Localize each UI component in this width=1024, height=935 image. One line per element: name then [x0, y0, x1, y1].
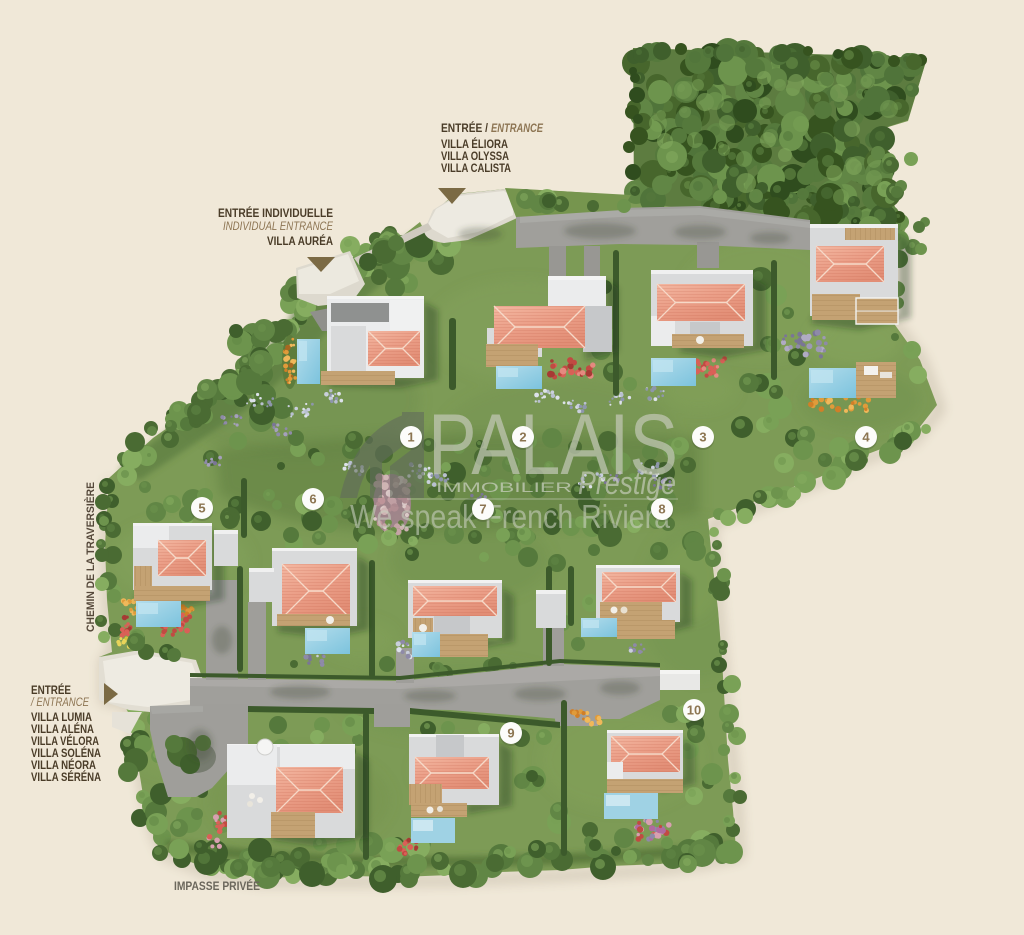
- svg-text:VILLA CALISTA: VILLA CALISTA: [441, 163, 511, 175]
- svg-text:ENTRÉE: ENTRÉE: [31, 682, 71, 697]
- svg-text:/ ENTRANCE: / ENTRANCE: [30, 697, 89, 709]
- svg-text:VILLA VÉLORA: VILLA VÉLORA: [31, 735, 99, 748]
- svg-text:8: 8: [658, 502, 665, 517]
- svg-text:2: 2: [519, 430, 526, 445]
- svg-text:Prestige: Prestige: [578, 465, 676, 501]
- svg-text:4: 4: [862, 430, 870, 445]
- svg-text:ENTRÉE INDIVIDUELLE: ENTRÉE INDIVIDUELLE: [218, 205, 333, 220]
- svg-text:VILLA SOLÉNA: VILLA SOLÉNA: [31, 747, 101, 760]
- svg-text:VILLA ÉLIORA: VILLA ÉLIORA: [441, 138, 508, 151]
- svg-text:10: 10: [687, 703, 701, 718]
- svg-text:ENTRANCE: ENTRANCE: [491, 121, 544, 135]
- svg-text:CHEMIN DE LA TRAVERSIÈRE: CHEMIN DE LA TRAVERSIÈRE: [84, 482, 97, 632]
- svg-text:VILLA ALÉNA: VILLA ALÉNA: [31, 723, 94, 736]
- svg-text:6: 6: [309, 492, 316, 507]
- svg-text:9: 9: [507, 726, 514, 741]
- svg-text:5: 5: [198, 501, 205, 516]
- svg-text:7: 7: [479, 502, 486, 517]
- svg-text:INDIVIDUAL ENTRANCE: INDIVIDUAL ENTRANCE: [223, 221, 333, 233]
- svg-text:VILLA AURÉA: VILLA AURÉA: [267, 233, 333, 248]
- svg-text:VILLA LUMIA: VILLA LUMIA: [31, 712, 92, 724]
- svg-text:We speak French Riviera: We speak French Riviera: [350, 498, 671, 535]
- svg-text:IMPASSE PRIVÉE: IMPASSE PRIVÉE: [174, 878, 260, 893]
- svg-text:ENTRÉE /: ENTRÉE /: [441, 120, 489, 135]
- svg-text:VILLA OLYSSA: VILLA OLYSSA: [441, 151, 509, 163]
- svg-text:3: 3: [699, 430, 706, 445]
- svg-text:IMMOBILIER: IMMOBILIER: [436, 479, 572, 495]
- svg-text:1: 1: [407, 430, 414, 445]
- svg-text:VILLA NÉORA: VILLA NÉORA: [31, 759, 96, 772]
- svg-text:VILLA SÉRÉNA: VILLA SÉRÉNA: [31, 771, 101, 784]
